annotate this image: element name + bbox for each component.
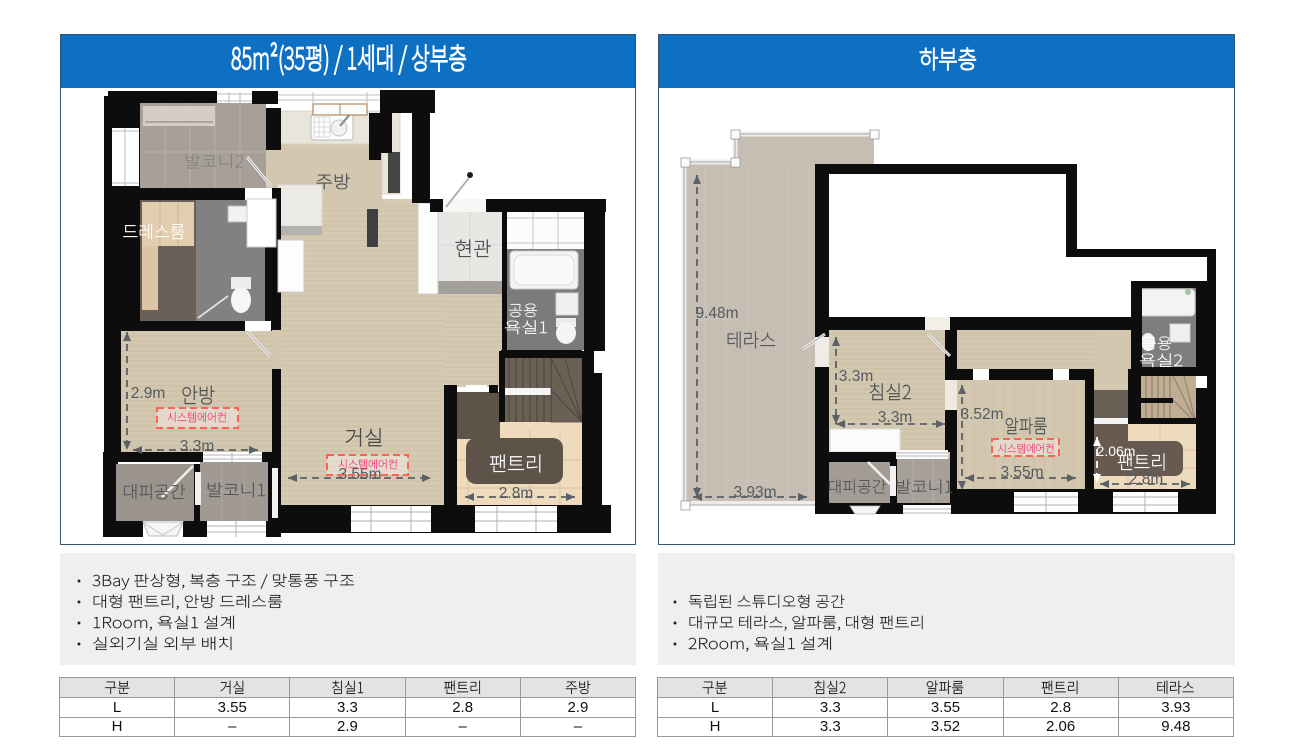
svg-text:2.8m: 2.8m [1129, 471, 1163, 488]
svg-text:3.3m: 3.3m [180, 438, 214, 455]
svg-text:3.3m: 3.3m [839, 368, 873, 385]
svg-text:9.48m: 9.48m [695, 305, 738, 322]
svg-text:2.8m: 2.8m [499, 485, 533, 502]
svg-text:3.52m: 3.52m [960, 406, 1003, 423]
svg-text:3.55m: 3.55m [338, 466, 381, 483]
svg-text:2.9m: 2.9m [131, 385, 165, 402]
svg-text:3.55m: 3.55m [1000, 464, 1043, 481]
svg-text:3.93m: 3.93m [733, 484, 776, 501]
svg-text:3.3m: 3.3m [878, 409, 912, 426]
svg-text:2.06m: 2.06m [1097, 443, 1136, 459]
